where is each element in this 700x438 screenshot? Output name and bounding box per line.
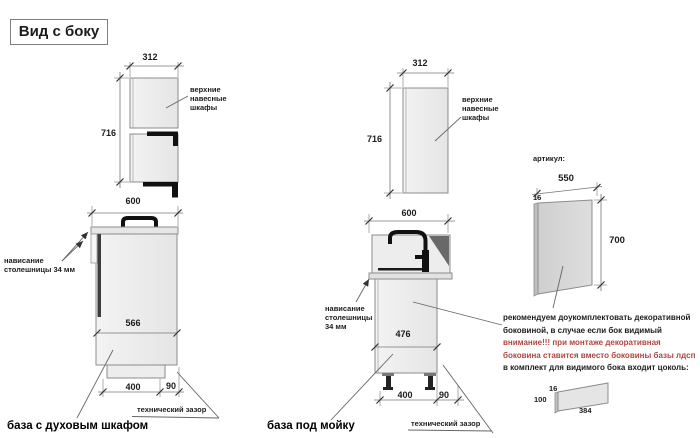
label-mid-tech-gap: технический зазор — [411, 419, 491, 428]
label-mid-overhang: нависание столешницы 34 мм — [325, 304, 377, 331]
label-left-upper-cabinets: верхние навесные шкафы — [190, 85, 254, 112]
drawing-linework — [0, 0, 700, 438]
note-line-5: в комплект для видимого бока входит цоко… — [503, 363, 700, 372]
note-line-1: рекомендуем доукомплектовать декоративно… — [503, 313, 700, 322]
label-line: верхние навесные — [462, 95, 526, 113]
dim-mid-base-inner: 476 — [381, 329, 425, 339]
left-base-cabinet — [91, 218, 178, 378]
dim-left-upper-height: 716 — [96, 128, 116, 138]
caption-mid-base: база под мойку — [267, 420, 355, 432]
label-line: шкафы — [462, 113, 526, 122]
note-line-3-warning: внимание!!! при монтаже декоративная — [503, 338, 700, 347]
dim-panel-width: 550 — [548, 173, 584, 184]
dim-mid-gap: 90 — [433, 390, 455, 400]
dim-plinth-thickness: 16 — [549, 384, 557, 393]
caption-left-base: база с духовым шкафом — [7, 420, 148, 432]
dim-left-base-inner: 566 — [111, 318, 155, 328]
label-line: 34 мм — [325, 322, 377, 331]
dim-panel-height: 700 — [604, 235, 630, 246]
countertop — [91, 227, 178, 234]
countertop-overhang-edge — [91, 234, 97, 263]
label-left-overhang: нависание столешницы 34 мм — [4, 256, 84, 274]
dim-left-base-width: 600 — [111, 196, 155, 206]
dim-panel-thickness: 16 — [533, 193, 541, 202]
dim-mid-upper-width: 312 — [398, 58, 442, 68]
left-upper-cabinet — [130, 78, 178, 198]
label-line: верхние навесные — [190, 85, 254, 103]
dim-left-gap: 90 — [159, 381, 183, 391]
dim-mid-upper-height: 716 — [362, 134, 382, 144]
label-left-tech-gap: технический зазор — [137, 405, 217, 414]
oven-door-edge — [98, 234, 102, 317]
side-view-technical-drawing: Вид с боку 312 716 верхние навесные шкаф… — [0, 0, 700, 438]
middle-upper-cabinet — [403, 88, 448, 193]
label-line: нависание — [4, 256, 84, 265]
dim-plinth-width: 384 — [579, 406, 592, 415]
note-line-2: боковиной, в случае если бок видимый — [503, 326, 700, 335]
decorative-side-panel — [534, 200, 592, 296]
label-line: столешницы 34 мм — [4, 265, 84, 274]
dim-left-upper-width: 312 — [128, 52, 172, 62]
plinth — [107, 365, 165, 378]
oven-handle-icon — [123, 218, 156, 227]
dim-plinth-height: 100 — [534, 395, 547, 404]
label-line: шкафы — [190, 103, 254, 112]
label-line: нависание — [325, 304, 377, 313]
note-line-4-warning: боковина ставится вместо боковины базы л… — [503, 351, 700, 360]
page-title: Вид с боку — [10, 19, 108, 45]
dim-left-plinth: 400 — [111, 382, 155, 392]
countertop — [369, 273, 452, 279]
label-article: артикул: — [533, 154, 565, 163]
dim-mid-plinth: 400 — [383, 390, 427, 400]
label-mid-upper-cabinets: верхние навесные шкафы — [462, 95, 526, 122]
label-line: столешницы — [325, 313, 377, 322]
adjustable-leg-icon — [382, 373, 436, 390]
sink-rim — [378, 268, 428, 271]
dim-mid-base-width: 600 — [387, 208, 431, 218]
